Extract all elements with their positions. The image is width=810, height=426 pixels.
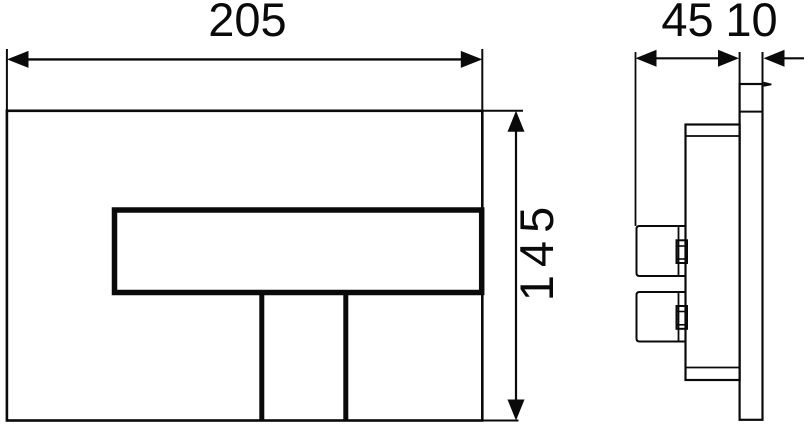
svg-text:45: 45: [661, 0, 713, 46]
svg-text:10: 10: [725, 0, 777, 46]
svg-text:145: 145: [510, 199, 563, 301]
svg-text:205: 205: [208, 0, 286, 46]
